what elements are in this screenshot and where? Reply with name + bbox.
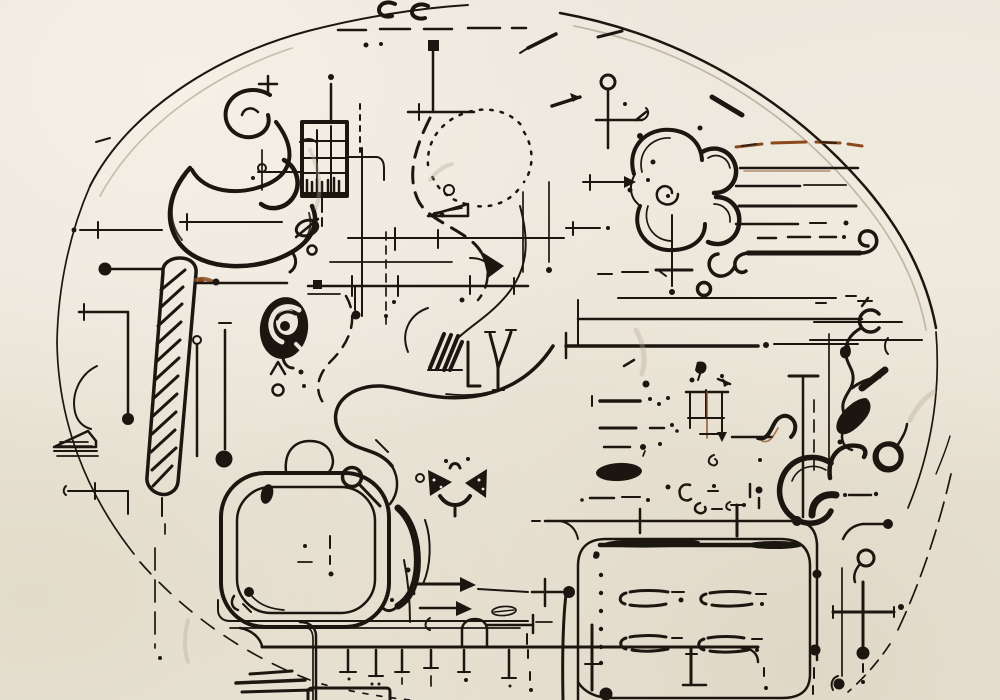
dashed-panel xyxy=(578,538,810,700)
seahorse-hook xyxy=(810,298,922,470)
clover-loop xyxy=(628,112,740,295)
sketch-canvas xyxy=(0,0,1000,700)
hatch-patch xyxy=(428,334,462,370)
hamburger-lines xyxy=(236,671,312,692)
mid-right-lines xyxy=(566,270,888,358)
panel-top-pipes xyxy=(532,484,822,694)
valve-blob xyxy=(428,457,487,516)
left-cross-line xyxy=(64,483,128,514)
center-bottom-junction xyxy=(390,568,575,700)
left-elbow-pipe xyxy=(79,304,134,425)
ink-drawing xyxy=(0,0,1000,700)
quill-flag xyxy=(428,204,504,278)
right-circuit-pipes xyxy=(812,436,950,690)
pin-with-circle-head xyxy=(520,34,648,235)
squircle-coil xyxy=(221,441,430,627)
left-verticals xyxy=(155,323,233,660)
wishbone-glyphs xyxy=(468,330,516,390)
cc-glyphs xyxy=(379,2,428,18)
dotted-blob xyxy=(428,110,532,218)
swirl-doodle xyxy=(72,76,317,272)
horizontal-line-stack xyxy=(736,142,862,239)
top-pin-square xyxy=(408,40,474,120)
panel-pill-brackets xyxy=(620,591,766,653)
ear-blob xyxy=(256,294,312,396)
mid-right-dotted-module xyxy=(580,360,842,523)
top-dash-line xyxy=(338,28,622,48)
left-arc xyxy=(74,366,97,429)
grid-module xyxy=(302,74,384,226)
